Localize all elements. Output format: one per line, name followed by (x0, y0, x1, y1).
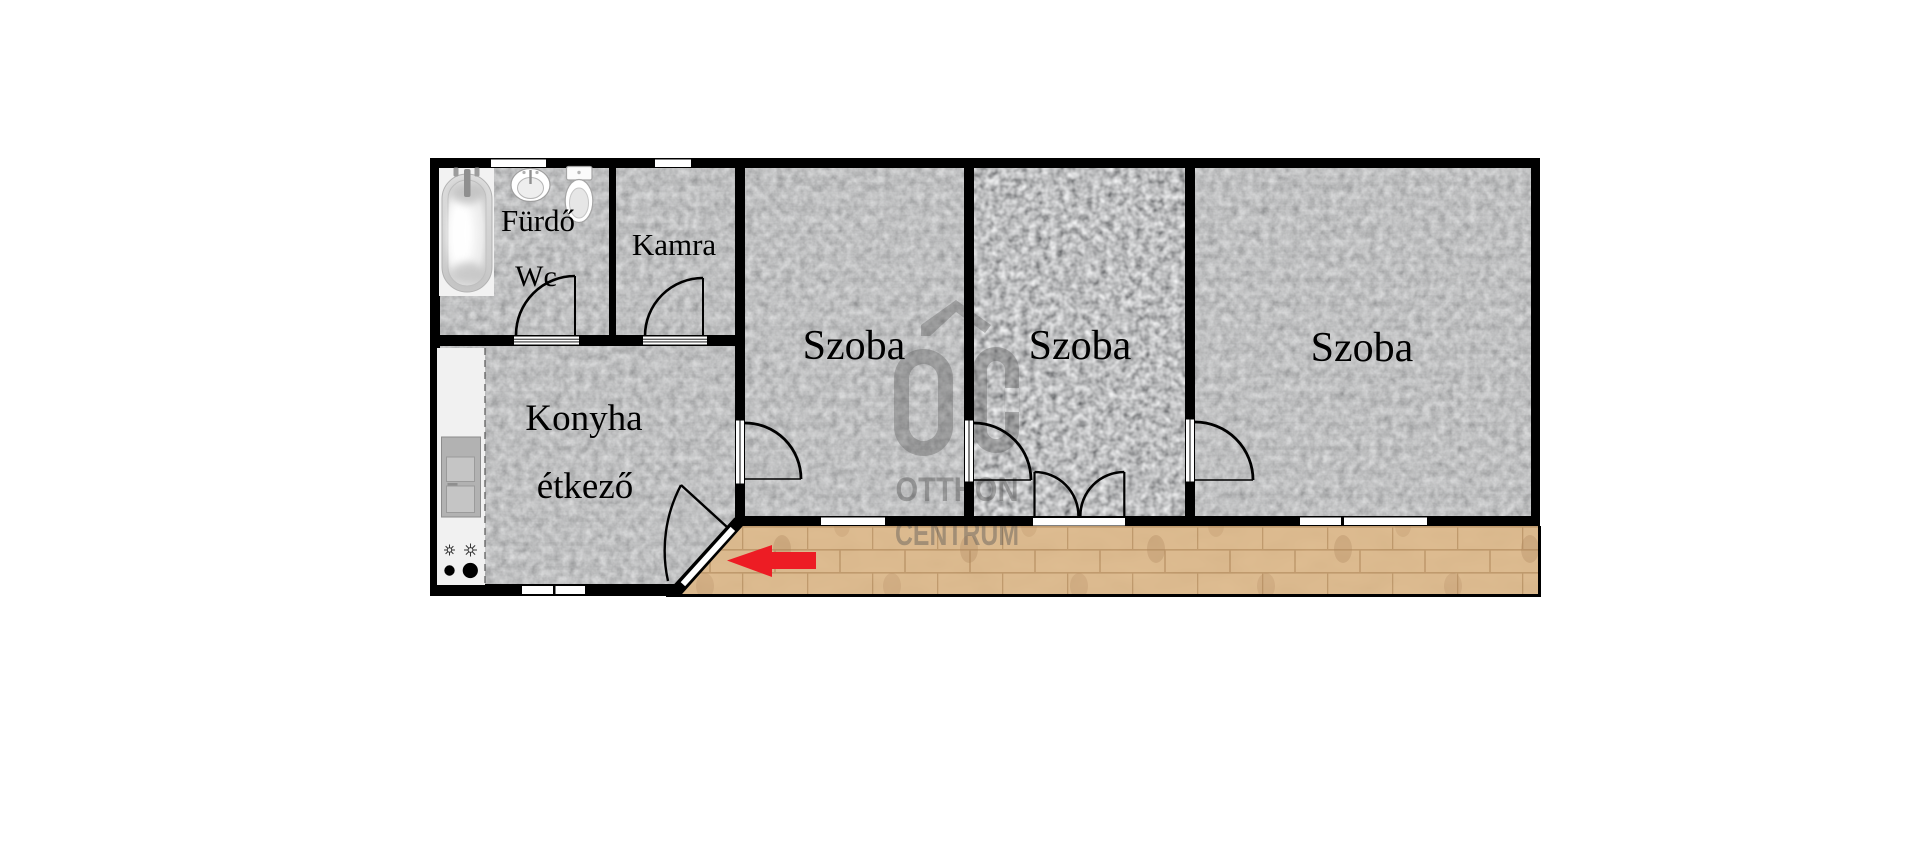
svg-text:Szoba: Szoba (1311, 325, 1414, 371)
svg-text:Szoba: Szoba (803, 323, 906, 369)
svg-text:Wc: Wc (515, 260, 557, 293)
svg-text:étkező: étkező (537, 466, 634, 507)
svg-text:Fürdő: Fürdő (501, 203, 575, 238)
svg-text:Konyha: Konyha (525, 398, 642, 439)
svg-text:Szoba: Szoba (1029, 323, 1132, 369)
svg-text:Kamra: Kamra (632, 227, 717, 262)
svg-text:OTTHON: OTTHON (896, 471, 1019, 509)
